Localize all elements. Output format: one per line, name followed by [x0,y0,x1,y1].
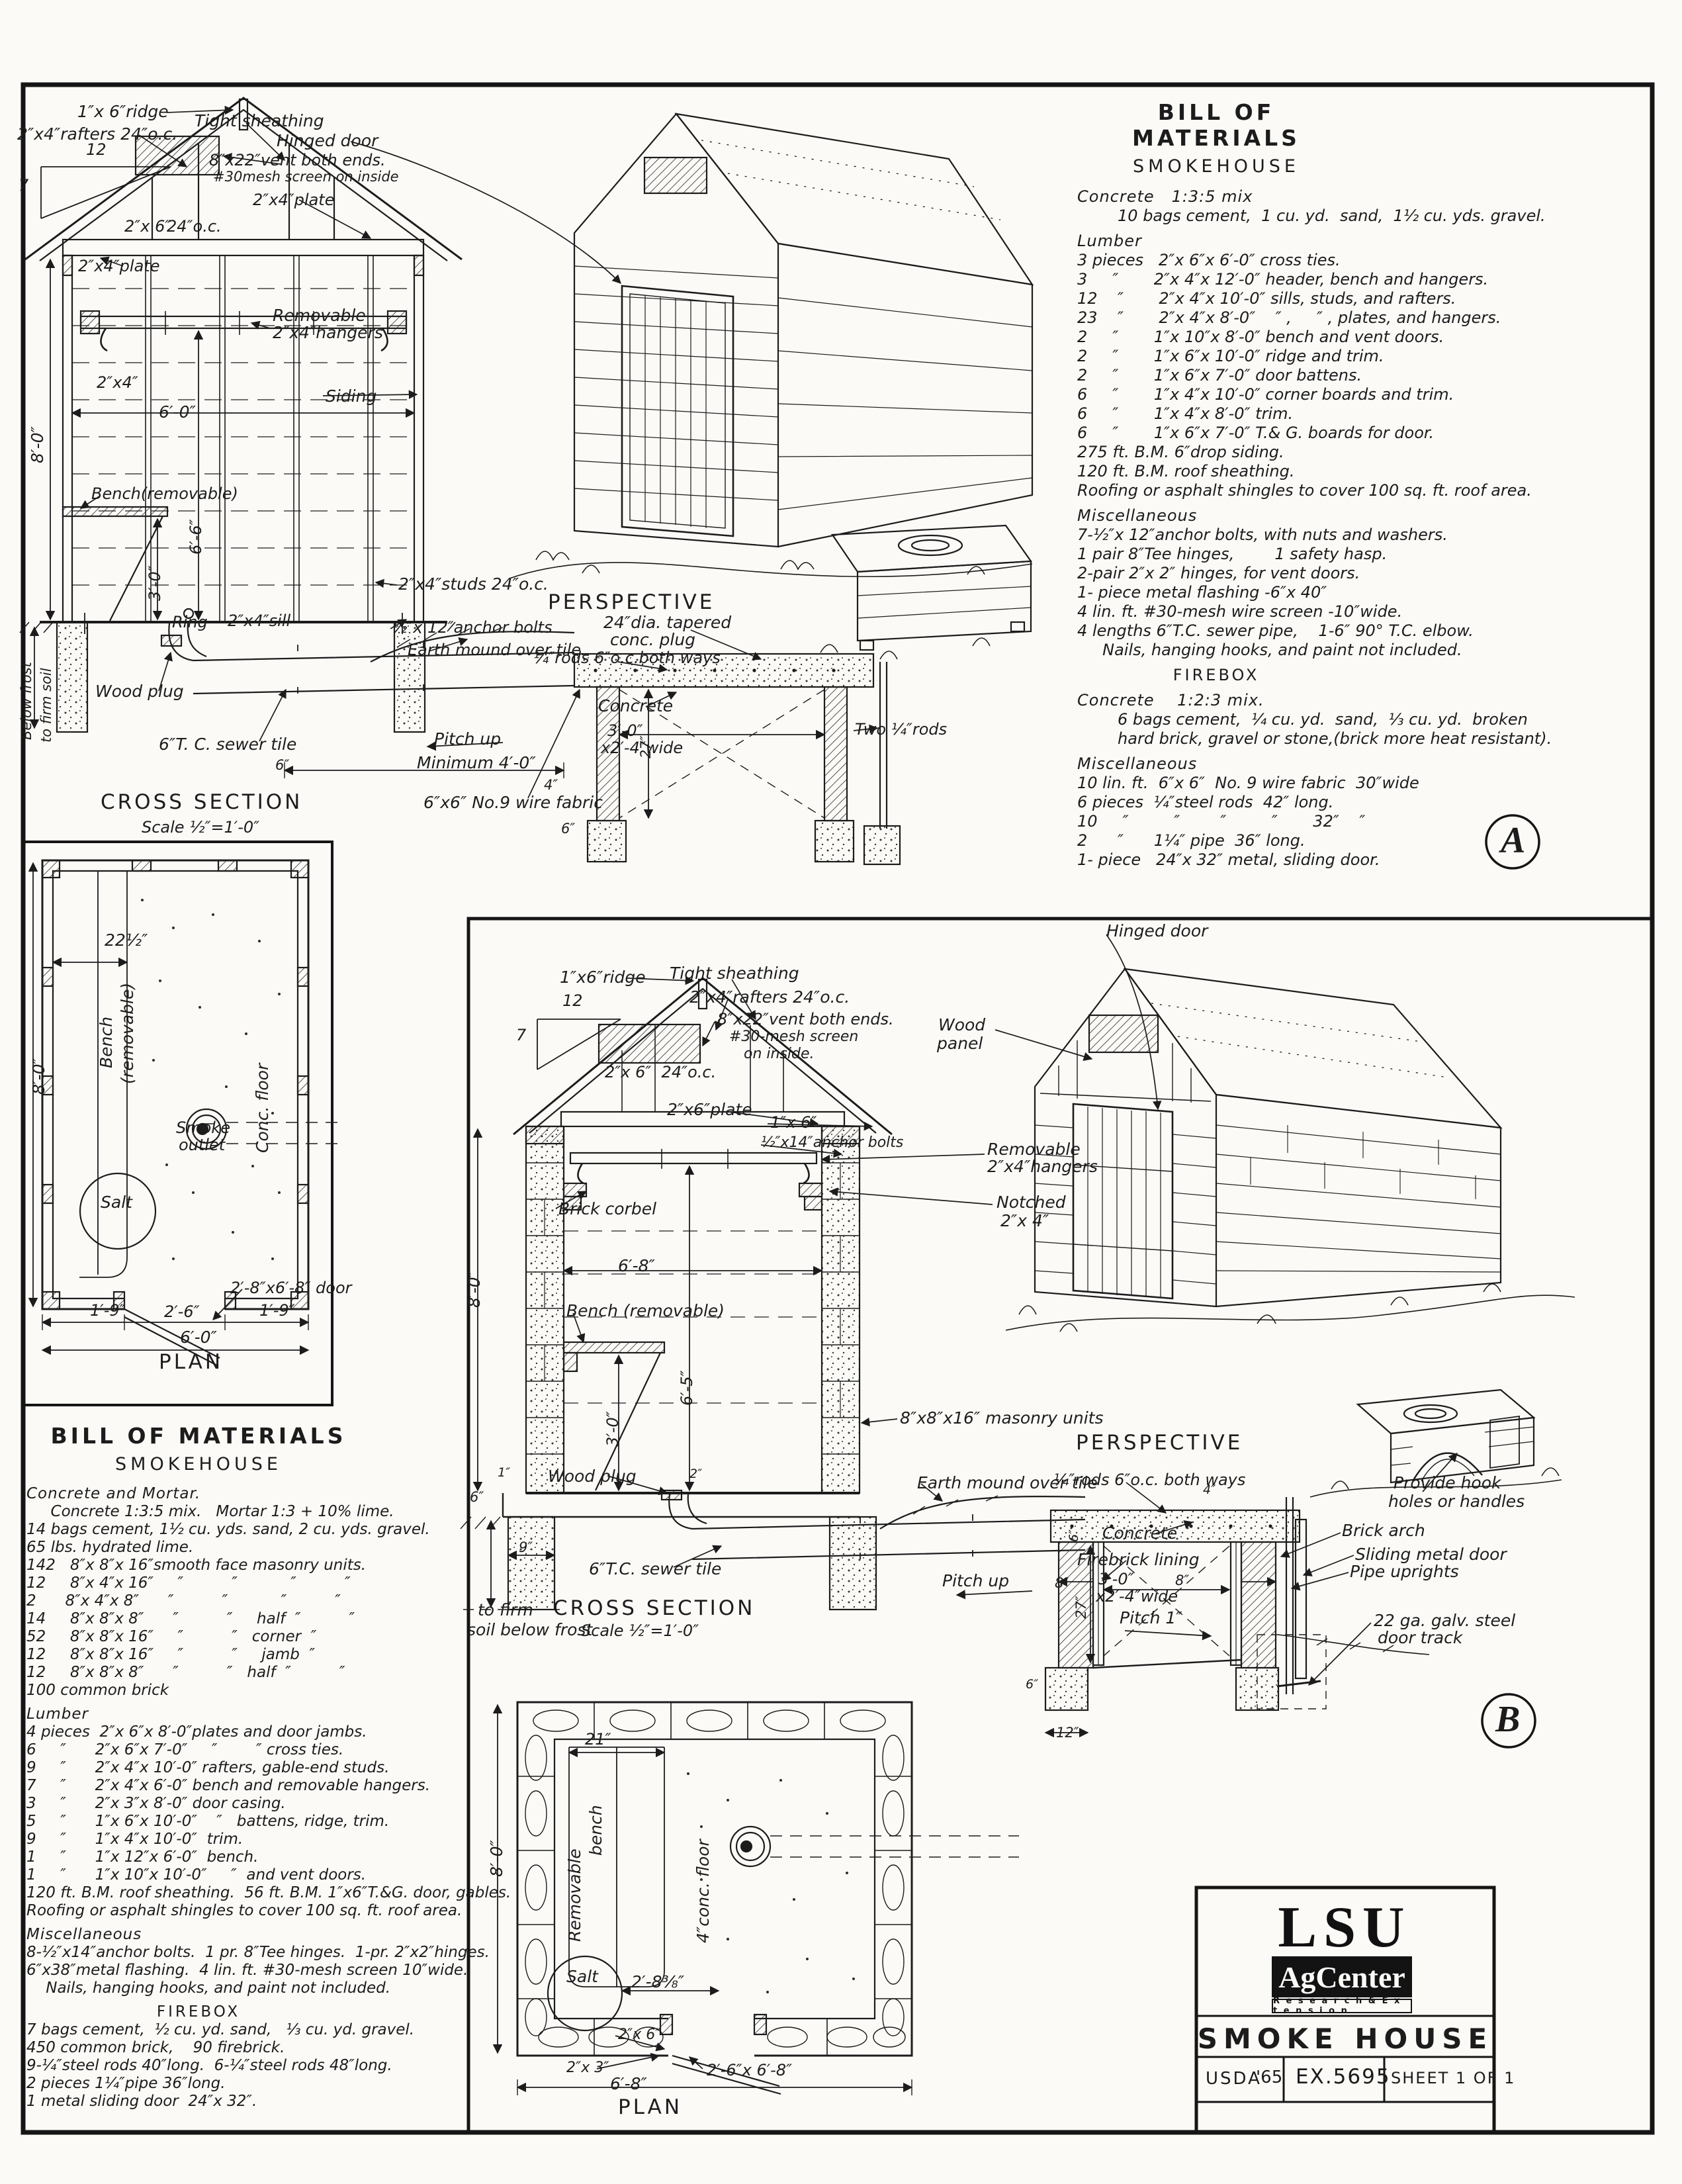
drawing-label: Wood plug [95,683,184,700]
drawing-label: Removable [987,1141,1081,1158]
bill-line: 10 lin. ft. 6″x 6″ No. 9 wire fabric 30″… [1077,774,1355,793]
drawing-label: 2″x 4″ [1000,1212,1049,1230]
drawing-label: Pipe uprights [1350,1563,1459,1580]
drawing-label: 24″dia. tapered [603,614,731,631]
drawing-label: 2″x6″plate [667,1101,752,1118]
drawing-label: Minimum 4′-0″ [417,754,536,772]
bill-line: 9 ″ 2″x 4″x 10′-0″ rafters, gable-end st… [26,1759,371,1777]
bill-line: 100 common brick [26,1682,371,1700]
bill-line: 14 8″x 8″x 8″ ″ ″ half ″ ″ [26,1610,371,1628]
drawing-label: 8″x8″x16″ masonry units [900,1410,1104,1427]
bill-line: 10 bags cement, 1 cu. yd. sand, 1½ cu. y… [1077,206,1355,226]
bill-line: 3 ″ 2″x 3″x 8′-0″ door casing. [26,1795,371,1813]
drawing-label: 3′-0″ [605,1411,621,1447]
drawing-label: Hinged door [277,132,378,150]
drawing-label: 1″ [498,1467,510,1480]
bill-of-materials-a: BILL OF MATERIALS SMOKEHOUSE Concrete 1:… [1077,99,1355,870]
drawing-label: Salt [101,1194,132,1211]
bill-line: 4 lengths 6″T.C. sewer pipe, 1-6″ 90° T.… [1077,621,1355,641]
plan-sheet: BILL OF MATERIALS SMOKEHOUSE Concrete 1:… [0,0,1682,2184]
drawing-label: Pitch up [434,731,501,748]
drawing-label: ½″x 12″anchor bolts [392,619,553,636]
bill-line: 1 ″ 1″x 10″x 10′-0″ ″ and vent doors. [26,1866,371,1884]
drawing-label: Hinged door [1106,923,1208,940]
bill-line: 14 bags cement, 1½ cu. yds. sand, 2 cu. … [26,1521,371,1539]
bill-line: 6 ″ 1″x 4″x 10′-0″ corner boards and tri… [1077,385,1355,404]
bill-line: 4 pieces 2″x 6″x 8′-0″plates and door ja… [26,1723,371,1741]
drawing-label: 2″x4″hangers [987,1158,1098,1175]
drawing-label: 6″ [561,822,575,837]
drawing-label: 6″ [470,1490,484,1505]
drawing-label: 8′-0″ [488,1840,506,1877]
bill-line: Miscellaneous [1077,506,1355,525]
drawing-label: 1″x 6″ridge [77,103,169,120]
bill-line: 450 common brick, 90 firebrick. [26,2039,371,2057]
drawing-label: 2′-6″x 6′-8″ [707,2062,792,2079]
drawing-label: 1″x6″ridge [560,969,646,986]
drawing-label: ¼″rods 6″o.c. both ways [1053,1472,1245,1488]
bill-line: Concrete 1:3:5 mix [1077,187,1355,206]
drawing-label: 2′-8⅜″ [631,1974,684,1991]
drawing-label: #30mesh screen on inside [213,170,399,185]
drawing-label: Concrete [1102,1525,1177,1542]
drawing-label: 6′-5″ [679,1370,695,1406]
drawing-label: Removable [273,307,366,324]
bill-line: Miscellaneous [1077,754,1355,774]
drawing-label: 2″ [689,1468,702,1481]
drawing-label: 6″x6″ No.9 wire fabric [423,794,603,811]
bill-line: 1 pair 8″Tee hinges, 1 safety hasp. [1077,545,1355,564]
drawing-label: 6″T. C. sewer tile [159,736,296,753]
drawing-label: ¼″rods 6″o.c.both ways [533,650,721,666]
bill-line: Lumber [26,1706,371,1723]
drawing-label: 7 [516,1027,526,1044]
bill-line: FIREBOX [1077,666,1355,685]
drawing-label: Bench [98,1017,115,1068]
bill-line: Miscellaneous [26,1926,371,1944]
bill-line: 2 8″x 4″x 8″ ″ ″ ″ ″ [26,1592,371,1610]
drawing-label: 4″conc. floor [695,1839,712,1943]
drawing-label: 7 [19,177,28,194]
drawing-label: 2″x 6″ 24″o.c. [605,1064,716,1081]
bill-line: Nails, hanging hooks, and paint not incl… [26,1979,371,1997]
drawing-label: 3′-0″ [147,565,163,601]
drawing-label: 6″ [1068,1529,1081,1542]
drawing-label: 8′-0″ [29,426,46,463]
bill-b-title: BILL OF MATERIALS [26,1423,371,1449]
bill-b-subtitle: SMOKEHOUSE [26,1454,371,1475]
drawing-label: Wood [938,1017,985,1034]
bill-line: 2 ″ 1″x 6″x 7′-0″ door battens. [1077,366,1355,385]
bill-b-lines: Concrete and Mortar. Concrete 1:3:5 mix.… [26,1485,371,2111]
drawing-label: door track [1378,1629,1462,1647]
bill-line: 3 ″ 2″x 4″x 12′-0″ header, bench and han… [1077,270,1355,289]
agcenter-logo-text: AgCenter [1278,1960,1405,1995]
drawing-label: 24″o.c. [167,218,222,235]
drawing-label: holes or handles [1388,1493,1525,1510]
bill-line: 1 ″ 1″x 12″x 6′-0″ bench. [26,1848,371,1866]
drawing-label: Notched [996,1194,1066,1211]
bill-of-materials-b: BILL OF MATERIALS SMOKEHOUSE Concrete an… [26,1423,371,2111]
cross-section-a-title: CROSS SECTION [101,792,302,813]
bill-line: 52 8″x 8″x 16″ ″ ″ corner ″ [26,1628,371,1646]
bill-line: 7 bags cement, ½ cu. yd. sand, ⅓ cu. yd.… [26,2021,371,2039]
drawing-label: 6″T.C. sewer tile [589,1561,721,1578]
drawing-label: 27″ [639,735,654,758]
plan-a-title: PLAN [159,1351,223,1373]
drawing-label: 6′-0″ [180,1329,217,1346]
drawing-label: Bench (removable) [566,1302,725,1320]
drawing-label: 4″ [544,778,558,793]
bill-line: 2 ″ 1″x 10″x 8′-0″ bench and vent doors. [1077,328,1355,347]
research-extension-strip: R e s e a r c h & E x t e n s i o n [1272,1999,1412,2013]
bill-line: 6″x38″metal flashing. 4 lin. ft. #30-mes… [26,1962,371,1979]
bill-line: 6 pieces ¼″steel rods 42″ long. [1077,793,1355,812]
lsu-logo-word: LSU [1276,1894,1413,1961]
sheet-number: SHEET 1 OF 1 [1391,2069,1515,2087]
drawing-label: Below frost [20,662,34,740]
bill-line: 2 pieces 1¼″pipe 36″long. [26,2075,371,2093]
drawing-label: Provide hook [1394,1475,1501,1492]
sheet-title: SMOKE HOUSE [1196,2023,1494,2055]
drawing-label: Two ¼″rods [855,721,947,738]
bill-line: 65 lbs. hydrated lime. [26,1539,371,1557]
bill-line: hard brick, gravel or stone,(brick more … [1077,729,1355,749]
drawing-label: Pitch 1″ [1120,1610,1182,1627]
perspective-a-drawing [509,114,1032,659]
research-extension-text: R e s e a r c h & E x t e n s i o n [1273,1996,1411,2016]
bill-line: 6 ″ 1″x 6″x 7′-0″ T.& G. boards for door… [1077,424,1355,443]
bill-line: 10 ″ ″ ″ ″ 32″ ″ [1077,812,1355,831]
agency-label: USDA [1206,2069,1262,2089]
drawing-label: 6′-0″ [159,404,196,421]
drawing-label: Siding [326,388,376,405]
drawing-label: x2′-4″wide [1096,1588,1178,1605]
bill-line: 7-½″x 12″anchor bolts, with nuts and was… [1077,525,1355,545]
year-label: '65 [1256,2068,1282,2087]
drawing-label: Scale ½″=1′-0″ [142,819,259,836]
drawing-label: #30-mesh screen [729,1030,858,1045]
bill-line: 23 ″ 2″x 4″x 8′-0″ ″ , ″ , plates, and h… [1077,308,1355,328]
drawing-label: 2″x 6″ [618,2028,660,2043]
bill-line: 1- piece 24″x 32″ metal, sliding door. [1077,850,1355,870]
bill-line: Nails, hanging hooks, and paint not incl… [1077,641,1355,660]
bill-line: Roofing or asphalt shingles to cover 100… [1077,481,1355,500]
bill-line: 8-½″x14″anchor bolts. 1 pr. 8″Tee hinges… [26,1944,371,1962]
bill-line: 9-¼″steel rods 40″long. 6-¼″steel rods 4… [26,2057,371,2075]
drawing-label: Conc. floor [254,1064,271,1153]
drawing-label: 2″x4″hangers [273,324,383,341]
drawing-label: 3′-0″ [1098,1571,1134,1588]
bill-line: 4 lin. ft. #30-mesh wire screen -10″wide… [1077,602,1355,621]
bill-line: 6 bags cement, ¼ cu. yd. sand, ⅓ cu. yd.… [1077,710,1355,729]
drawing-label: 8′-0″ [30,1058,48,1095]
drawing-label: 2″x 3″ [566,2061,609,2076]
drawing-label: 6′-8″ [610,2075,647,2093]
bill-line: 9 ″ 1″x 4″x 10′-0″ trim. [26,1831,371,1848]
drawing-label: Bench(removable) [91,486,238,502]
drawing-label: 2″x4″plate [253,192,334,208]
bill-line: 120 ft. B.M. roof sheathing. 56 ft. B.M.… [26,1884,371,1902]
drawing-label: 12″ [1056,1726,1079,1741]
drawing-label: 22 ga. galv. steel [1374,1612,1515,1629]
drawing-label: 6′-8″ [618,1257,655,1275]
drawing-label: 22½″ [105,932,148,949]
bill-line: 12 8″x 8″x 8″ ″ ″ half ″ ″ [26,1664,371,1682]
bill-line: FIREBOX [26,2003,371,2021]
drawing-label: 6′-6″ [188,519,204,555]
drawing-label: 8″x22″vent both ends. [209,152,386,169]
drawing-label: Sliding metal door [1355,1546,1507,1563]
drawing-label: 2″x4″sill [228,613,290,629]
drawing-label: 6″ [275,758,289,773]
drawing-label: 8″ [1055,1576,1069,1591]
drawing-label: 21″ [585,1731,611,1748]
bill-a-subtitle: SMOKEHOUSE [1077,156,1355,177]
bill-line: 275 ft. B.M. 6″drop siding. [1077,443,1355,462]
drawing-label: Ring [172,614,208,631]
drawing-label: Tight sheathing [670,965,799,982]
perspective-a-title: PERSPECTIVE [548,592,715,613]
drawing-label: Removable [566,1848,584,1942]
bill-line: 12 ″ 2″x 4″x 10′-0″ sills, studs, and ra… [1077,289,1355,308]
drawing-label: Brick arch [1342,1522,1425,1539]
drawing-label: 12 [562,993,583,1009]
drawing-label: 6″ [1026,1678,1038,1692]
bill-line: 12 8″x 4″x 16″ ″ ″ ″ ″ [26,1574,371,1592]
bill-line: 120 ft. B.M. roof sheathing. [1077,462,1355,481]
bill-line: Concrete and Mortar. [26,1485,371,1503]
drawing-label: (removable) [119,983,136,1084]
drawing-label: 1′-9″ [259,1302,295,1319]
bill-line: 12 8″x 8″x 16″ ″ ″ jamb ″ [26,1646,371,1664]
drawing-label: 2″x4″rafters 24″o.c. [689,989,850,1006]
drawing-label: Smoke [176,1120,230,1136]
exhibit-number: EX.5695 [1296,2065,1391,2089]
bill-line: 5 ″ 1″x 6″x 10′-0″ ″ battens, ridge, tri… [26,1813,371,1831]
drawing-label: 1′-9″ [90,1302,126,1319]
bill-line: 2 ″ 1¼″ pipe 36″ long. [1077,831,1355,850]
drawing-label: Concrete [598,698,673,715]
plan-b-title: PLAN [618,2097,682,2118]
drawing-label: bench [588,1805,605,1856]
drawing-label: Brick corbel [558,1201,656,1218]
drawing-label: 4″ [1203,1484,1216,1497]
drawing-label: Tight sheathing [195,113,324,130]
bill-line: Lumber [1077,232,1355,251]
drawing-label: Firebrick lining [1077,1551,1200,1569]
drawing-label: 2″x4″plate [78,258,159,275]
drawing-label: 2′-8″x6′-8″ door [230,1280,352,1297]
agcenter-logo-band: AgCenter [1272,1956,1412,1997]
drawing-label: on inside. [744,1047,815,1062]
drawing-label: 2″x4″studs 24″o.c. [398,576,549,593]
perspective-b-title: PERSPECTIVE [1076,1432,1243,1453]
drawing-label: panel [937,1035,983,1052]
drawing-label: Scale ½″=1′-0″ [581,1623,699,1639]
drawing-label: conc. plug [610,631,695,649]
drawing-label: 2″x 6″ [124,218,171,235]
bill-line: Concrete 1:2:3 mix. [1077,691,1355,710]
drawing-label: ½″x14″anchor bolts [761,1136,903,1151]
drawing-label: 8′-0″ [466,1271,483,1308]
bill-line: 3 pieces 2″x 6″x 6′-0″ cross ties. [1077,251,1355,270]
bill-line: 7 ″ 2″x 4″x 6′-0″ bench and removable ha… [26,1777,371,1795]
bill-line: Roofing or asphalt shingles to cover 100… [26,1902,371,1920]
drawing-label: soil below frost [467,1621,592,1639]
bill-line: 1- piece metal flashing -6″x 40″ [1077,583,1355,602]
drawing-label: Wood plug [548,1468,637,1485]
drawing-label: 27″ [1075,1596,1089,1619]
bill-a-title: BILL OF MATERIALS [1077,99,1355,151]
bill-line: 1 metal sliding door 24″x 32″. [26,2093,371,2111]
drawing-label: Pitch up [942,1572,1009,1590]
bill-line: 6 ″ 1″x 4″x 8′-0″ trim. [1077,404,1355,424]
bill-line: 2-pair 2″x 2″ hinges, for vent doors. [1077,564,1355,583]
bill-line: 2 ″ 1″x 6″x 10′-0″ ridge and trim. [1077,347,1355,366]
cross-section-a-drawing [20,98,900,864]
drawing-label: 8″ [1175,1574,1189,1588]
drawing-label: 2′-6″ [164,1304,200,1320]
detail-badge-b: B [1495,1698,1520,1741]
drawing-label: 1″x 6″ [770,1115,817,1131]
cross-section-b-title: CROSS SECTION [553,1598,755,1619]
bill-line: 142 8″x 8″x 16″smooth face masonry units… [26,1557,371,1574]
drawing-label: to firm [478,1602,533,1619]
bill-a-lines: Concrete 1:3:5 mix 10 bags cement, 1 cu.… [1077,187,1355,870]
drawing-label: Salt [566,1968,598,1985]
drawing-label: 8″x22″vent both ends. [717,1011,894,1028]
bill-line: Concrete 1:3:5 mix. Mortar 1:3 + 10% lim… [26,1503,371,1521]
drawing-label: to firm soil [40,668,54,743]
detail-badge-a: A [1501,819,1525,862]
bill-line: 6 ″ 2″x 6″x 7′-0″ ″ ″ cross ties. [26,1741,371,1759]
drawing-label: 12 [86,142,107,158]
drawing-label: 9″ [519,1541,533,1555]
drawing-label: 2″x4″ [97,375,138,391]
drawing-label: outlet [179,1137,225,1154]
